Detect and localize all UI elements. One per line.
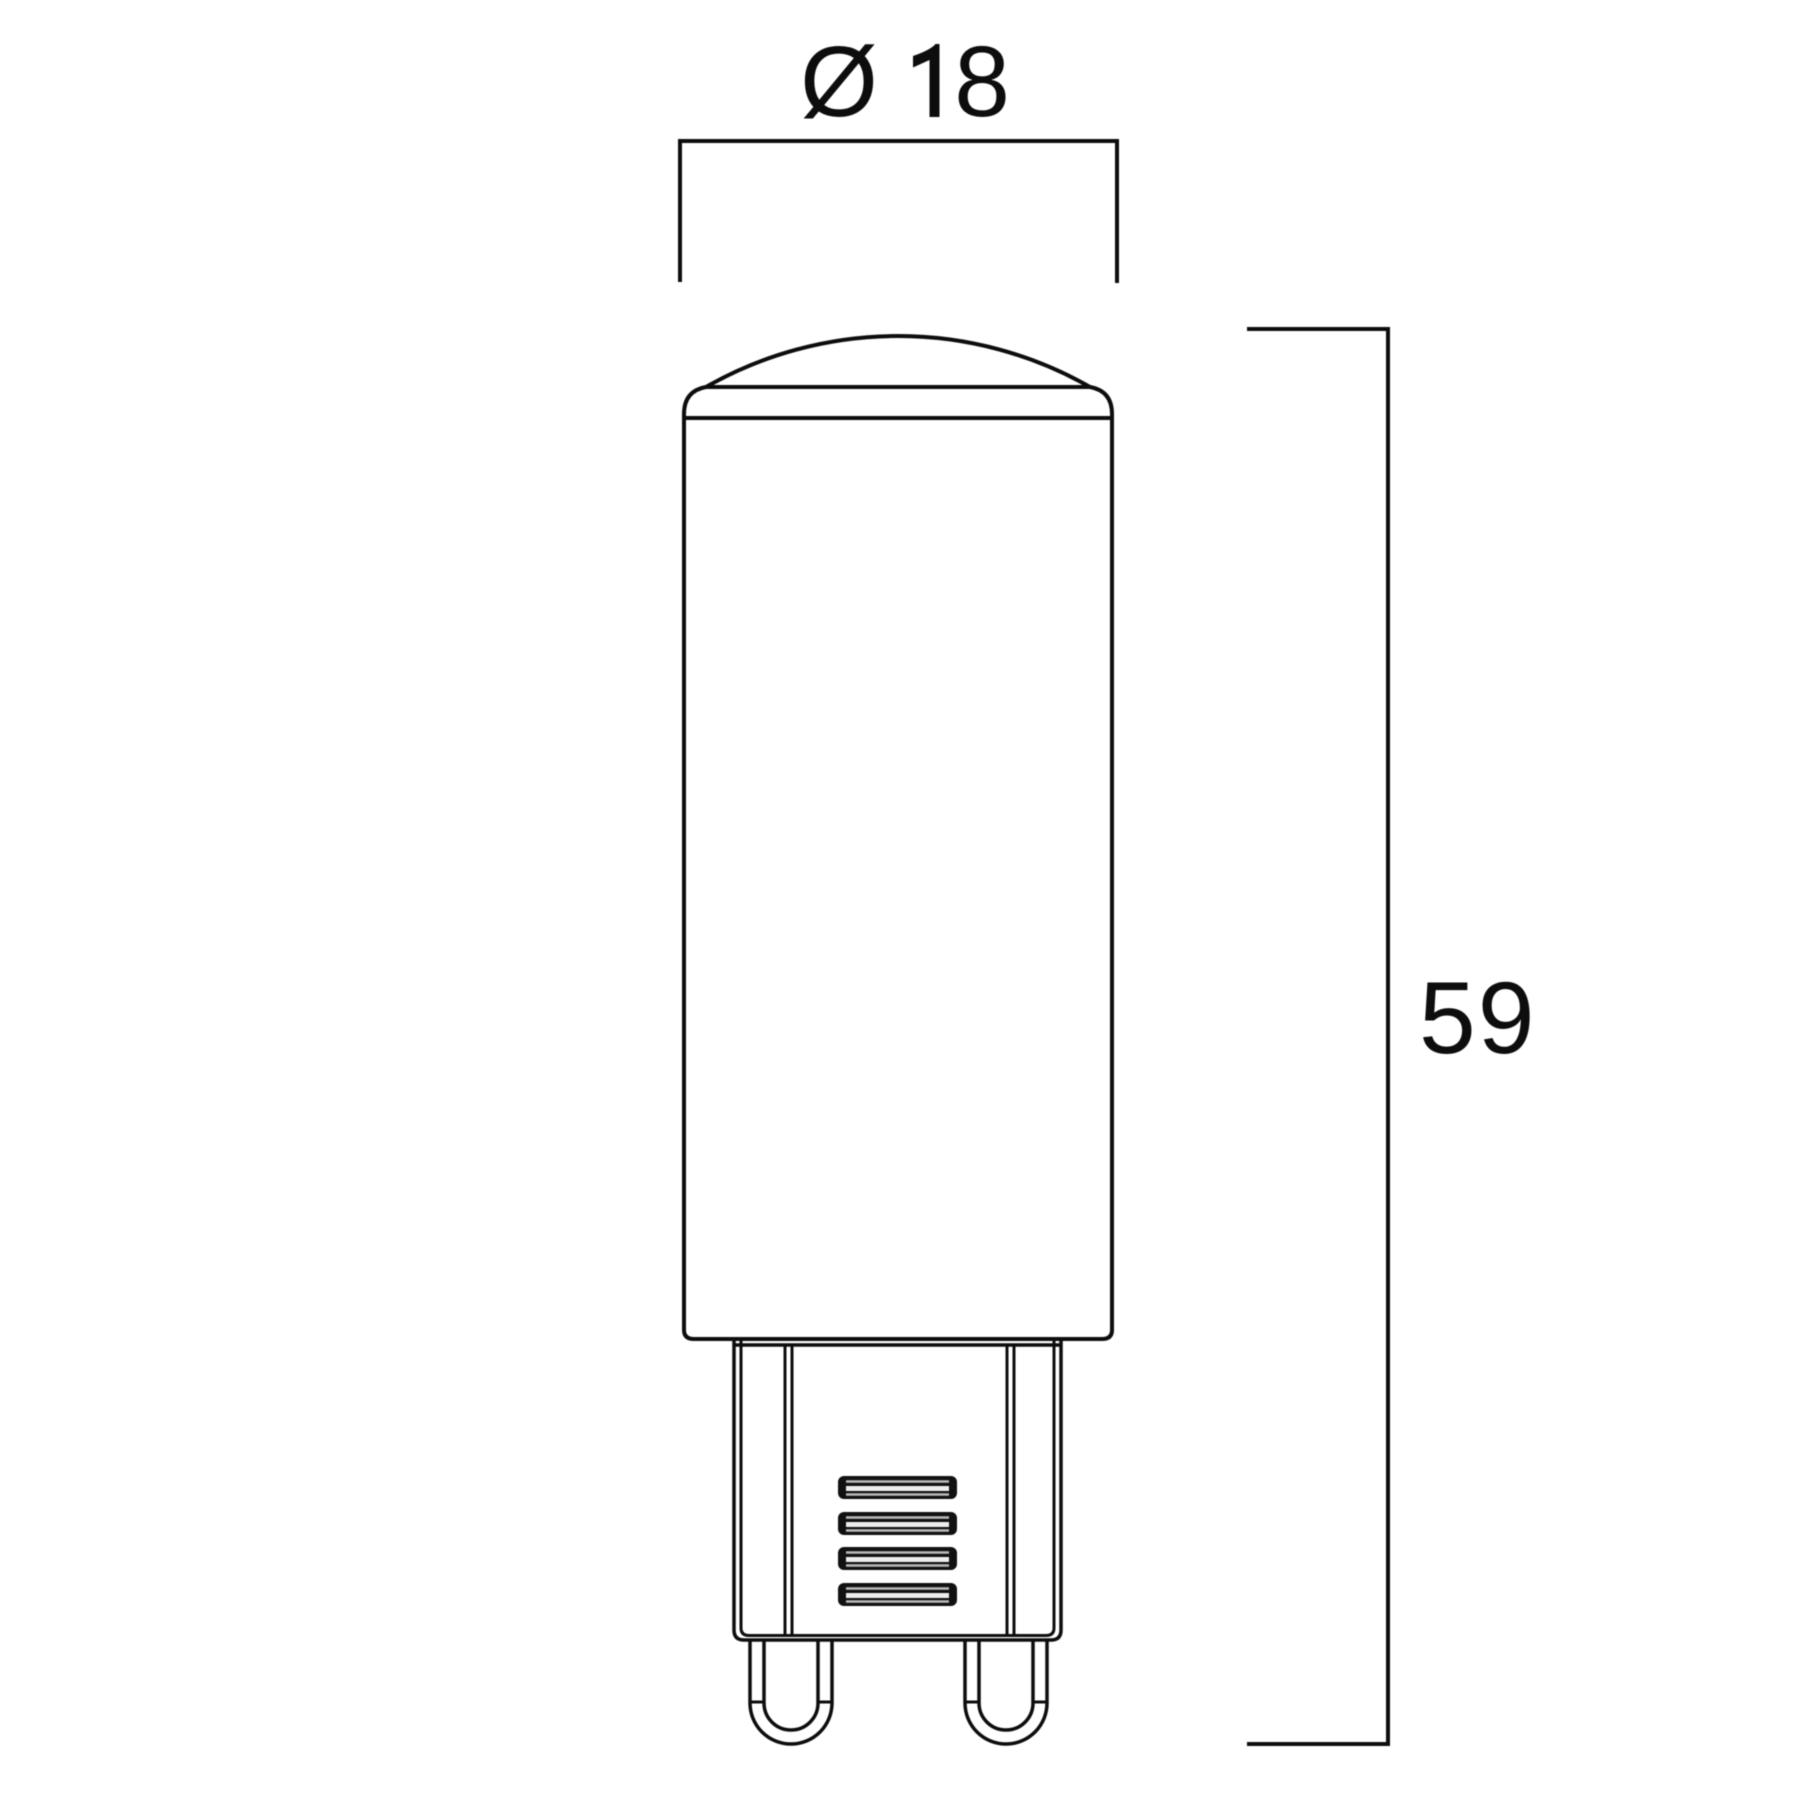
svg-text:Ø: Ø [800, 26, 878, 138]
svg-text:8: 8 [954, 26, 1010, 138]
svg-text:59: 59 [1419, 961, 1536, 1075]
